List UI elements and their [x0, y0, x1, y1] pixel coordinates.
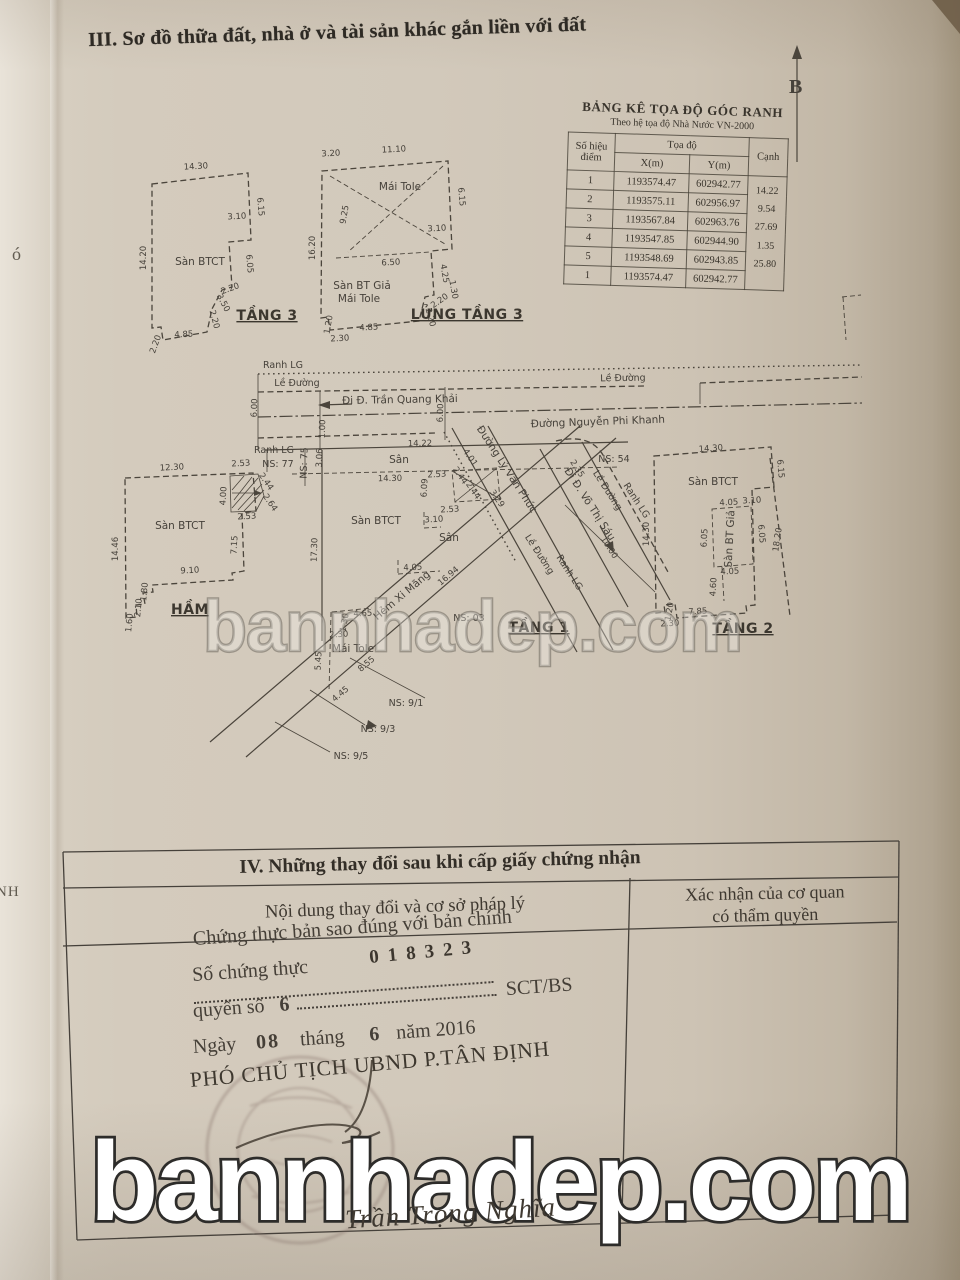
plan-title-lung-tang3: LỬNG TẦNG 3 [411, 304, 523, 323]
cell-y: 602942.77 [686, 269, 746, 290]
coordinate-table: BẢNG KÊ TỌA ĐỘ GÓC RANH Theo hệ tọa độ N… [557, 98, 803, 291]
col-header-y: Y(m) [689, 155, 749, 176]
dim-label: 6.15 [455, 187, 467, 207]
dim-label: 14.20 [139, 246, 149, 270]
dim-label: 2.20 [207, 309, 222, 330]
edge-value: 14.22 [748, 185, 786, 197]
cell-x: 1193547.85 [612, 228, 688, 249]
dim-label: 2.30 [330, 334, 349, 345]
bleed-through-text: NH [0, 884, 20, 901]
cell-x: 1193548.69 [611, 247, 687, 268]
dim-label: 2.44 [256, 471, 275, 492]
dim-label: 18.20 [771, 527, 784, 552]
cell-point: 1 [567, 170, 615, 190]
date-year-value: năm 2016 [395, 1016, 476, 1043]
cell-y: 602942.77 [689, 174, 749, 195]
cadastral-drawing: B 14.30 6.15 3.10 6.05 2.20 3.50 2.20 4.… [0, 0, 960, 1280]
road-label-nguyen-phi-khanh: Đường Nguyễn Phi Khanh [531, 413, 666, 431]
cell-x: 1193574.47 [611, 266, 687, 287]
dim-label: 16.94 [436, 565, 461, 588]
dim-label: 4.01 [460, 447, 479, 468]
dim-label: 3.10 [424, 515, 443, 526]
dim-label: 6.50 [381, 258, 400, 269]
cell-edges: 14.22 9.54 27.69 1.35 25.80 [745, 176, 788, 291]
cell-x: 1193575.11 [613, 190, 689, 211]
area-label: Sân [439, 532, 459, 544]
neighbor-label: NS: 9/1 [389, 698, 424, 709]
neighbor-label: NS: 77 [262, 459, 293, 470]
area-label: Sàn BTCT [175, 256, 225, 268]
cell-point: 3 [565, 208, 613, 228]
dim-label: 9.10 [180, 566, 199, 577]
date-day-value: 08 [255, 1030, 280, 1054]
date-word-day: Ngày [192, 1033, 237, 1058]
col-header-edge: Cạnh [748, 138, 788, 177]
dim-label: 1.00 [318, 419, 329, 438]
date-month-value: 6 [369, 1023, 383, 1046]
dim-label: 3.10 [427, 224, 446, 235]
boundary-bracket [842, 295, 861, 340]
neighbor-label: NS: 9/3 [361, 724, 396, 735]
sidewalk-label: Lề Đường [600, 373, 646, 385]
area-label: Mái Tole [379, 181, 421, 193]
area-label: Sân [389, 454, 409, 466]
dim-label: 3.20 [321, 149, 340, 160]
plan-tang3: 14.30 6.15 3.10 6.05 2.20 3.50 2.20 4.85… [139, 161, 298, 355]
dim-label: 3.10 [742, 496, 761, 507]
edge-value: 9.54 [747, 203, 785, 215]
dim-label: 14.30 [642, 522, 652, 546]
dim-label: 6.05 [700, 528, 711, 547]
cell-x: 1193567.84 [612, 209, 688, 230]
dim-label: 4.45 [330, 685, 351, 705]
area-label: Sàn BTCT [351, 515, 401, 527]
date-word-month: tháng [299, 1025, 345, 1050]
cell-point: 1 [564, 265, 612, 285]
dim-label: 6.15 [774, 459, 786, 479]
dim-label: 14.30 [183, 161, 208, 172]
dim-label: 14.30 [378, 474, 403, 484]
dim-label: 4.85 [359, 323, 378, 334]
dim-label: 2.44 [463, 480, 482, 501]
dim-label: 2.53 [231, 459, 250, 470]
dim-label: 4.05 [719, 498, 738, 509]
cell-y: 602956.97 [688, 193, 748, 214]
dim-label: 6.15 [254, 197, 266, 217]
boundary-label: Ranh LG [254, 445, 294, 456]
dim-label: 3.10 [227, 212, 246, 223]
cell-point: 4 [565, 227, 613, 247]
dim-label: 4.85 [174, 330, 193, 341]
area-label: Sàn BT Giả [723, 510, 738, 568]
dim-label: 14.22 [408, 439, 433, 449]
area-label: Sàn BTCT [688, 476, 738, 488]
edge-value: 1.35 [746, 240, 784, 252]
dim-label: 2.53 [237, 512, 256, 523]
cell-x: 1193574.47 [614, 171, 690, 192]
neighbor-label: NS: 9/5 [334, 751, 369, 762]
dim-label: 14.30 [698, 443, 723, 455]
dim-label: 7.15 [230, 535, 241, 554]
boundary-label: Ranh LG [263, 360, 303, 371]
watermark-middle: bannhadep.com [203, 587, 742, 667]
area-label: Mái Tole [338, 293, 380, 305]
edge-value: 25.80 [746, 258, 784, 270]
sidewalk-label: Lề Đường [274, 378, 319, 389]
dim-label: 2.53 [440, 505, 459, 516]
dim-label: 14.46 [111, 537, 121, 561]
dim-label: 11.10 [381, 144, 406, 155]
cell-point: 5 [564, 246, 612, 266]
dim-label: 6.09 [420, 478, 431, 497]
col-header-point: Số hiệu điểm [567, 132, 615, 171]
dim-label: 10.00 [598, 535, 620, 561]
area-label: Sàn BTCT [155, 520, 205, 532]
north-label: B [789, 76, 802, 98]
dim-label: 12.30 [159, 462, 184, 473]
dim-label: 1.60 [124, 613, 136, 633]
cell-y: 602943.85 [686, 250, 746, 271]
dim-label: 6.00 [250, 398, 261, 417]
coordinate-table-grid: Số hiệu điểm Tọa độ Cạnh X(m) Y(m) 1 119… [563, 131, 789, 291]
neighbor-label: NS: 54 [598, 454, 629, 465]
col-header-x: X(m) [614, 152, 690, 173]
dim-label: 17.30 [310, 538, 321, 563]
dim-label: 6.05 [755, 524, 767, 544]
dim-label: 16.20 [308, 236, 318, 260]
plan-title-tang3: TẦNG 3 [236, 305, 297, 324]
dim-label: 1.20 [322, 314, 335, 334]
book-number-suffix: SCT/BS [505, 973, 573, 1000]
book-number-value: 6 [279, 993, 293, 1016]
dim-label: 2.64 [260, 492, 279, 513]
boundary-label: Ranh LG [621, 481, 652, 520]
area-label: Sàn BT Giả [333, 280, 391, 292]
bleed-through-text: ó [12, 244, 21, 265]
dim-label: 3.06 [315, 448, 326, 467]
cell-point: 2 [566, 189, 614, 209]
dim-label: 1.30 [446, 279, 459, 299]
edge-value: 27.69 [747, 221, 785, 233]
dim-label: 4.00 [219, 486, 230, 505]
dim-label: 6.05 [243, 254, 255, 274]
cell-y: 602944.90 [687, 231, 747, 252]
section4-col-right: Xác nhận của cơ quan có thẩm quyền [640, 879, 891, 928]
dim-label: 6.00 [436, 403, 447, 422]
cell-y: 602963.76 [687, 212, 747, 233]
neighbor-label: NS: 75 [298, 447, 310, 479]
dim-label: 2.20 [148, 334, 164, 355]
dim-label: 9.25 [338, 204, 351, 224]
book-number-label: quyển số [192, 995, 265, 1022]
plan-lung-tang3: 3.20 11.10 6.15 9.25 3.10 4.25 6.50 1.30… [308, 144, 523, 344]
